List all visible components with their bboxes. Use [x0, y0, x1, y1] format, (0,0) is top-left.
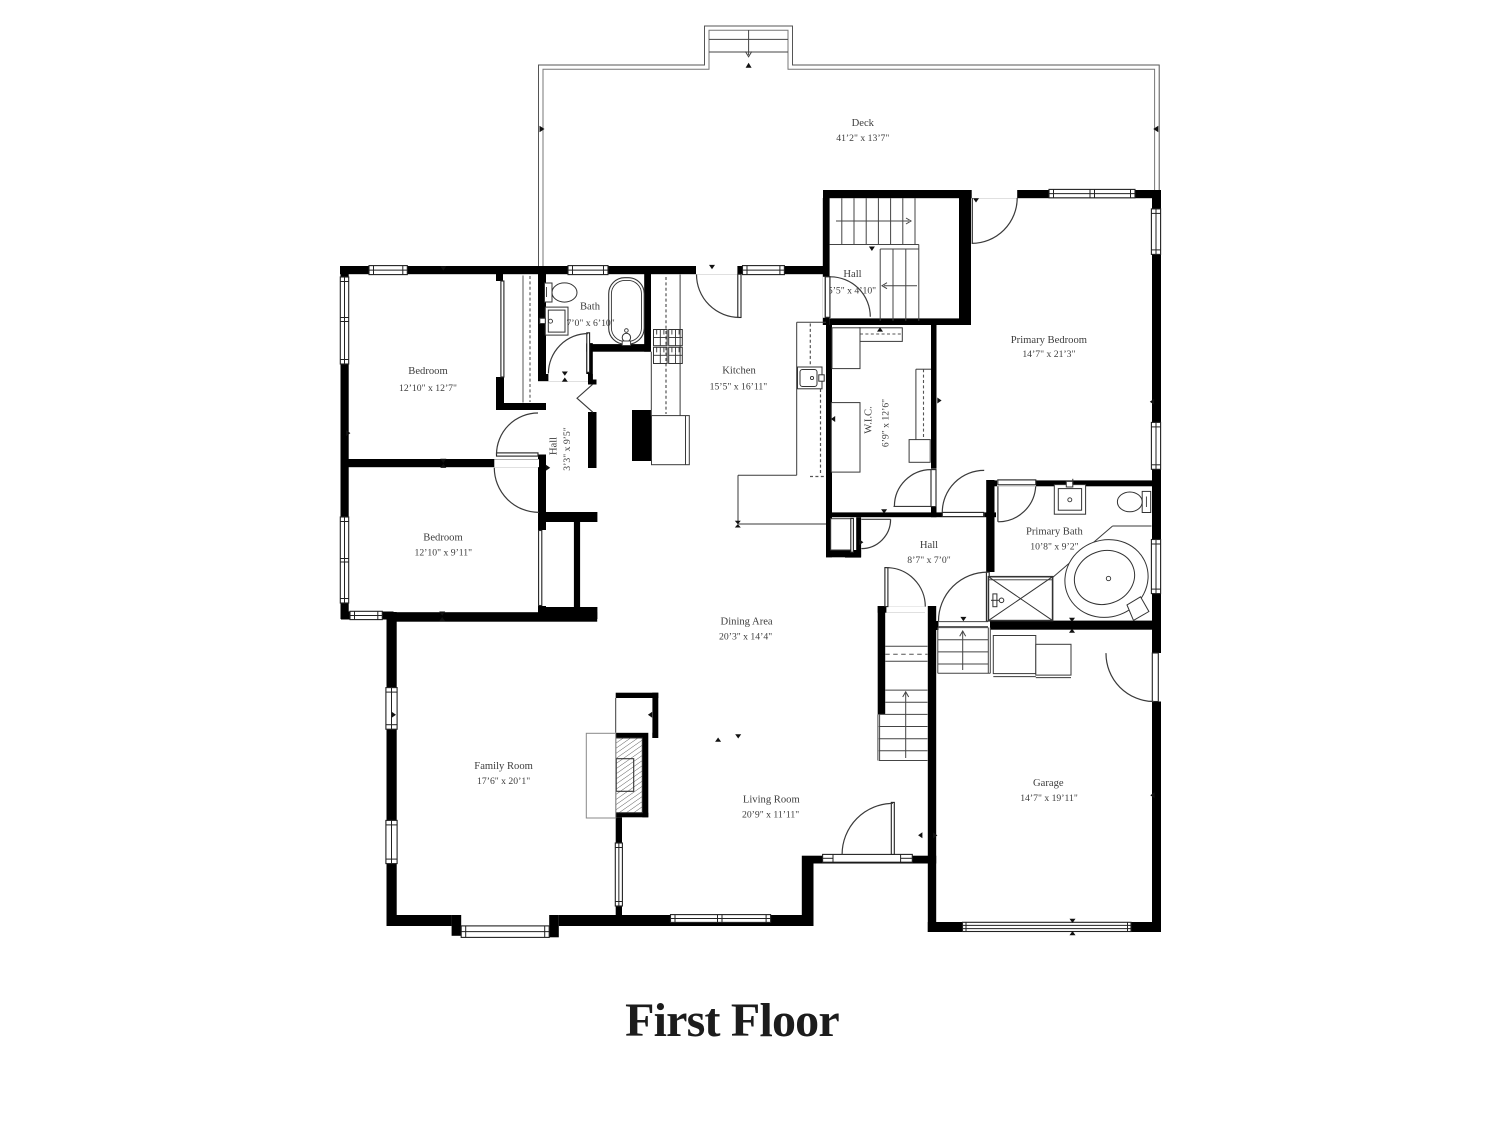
svg-text:Living Room: Living Room	[743, 795, 801, 806]
svg-text:Bedroom: Bedroom	[408, 366, 448, 377]
svg-text:Dining Area: Dining Area	[721, 616, 773, 627]
svg-text:12’10" x 9’11": 12’10" x 9’11"	[414, 547, 472, 558]
svg-text:14’7" x 19’11": 14’7" x 19’11"	[1020, 793, 1078, 804]
svg-text:Garage: Garage	[1033, 778, 1064, 789]
svg-text:41’2" x 13’7": 41’2" x 13’7"	[836, 133, 889, 144]
svg-text:Hall: Hall	[549, 437, 560, 455]
svg-text:W.I.C.: W.I.C.	[864, 406, 875, 434]
svg-text:14’7" x 21’3": 14’7" x 21’3"	[1022, 349, 1075, 360]
svg-text:Primary Bath: Primary Bath	[1026, 527, 1083, 538]
svg-text:Family Room: Family Room	[474, 761, 533, 772]
svg-text:7’0" x 6’10": 7’0" x 6’10"	[566, 318, 614, 329]
svg-text:6’9" x 12’6": 6’9" x 12’6"	[881, 399, 892, 447]
svg-text:20’9" x 11’11": 20’9" x 11’11"	[742, 810, 799, 821]
svg-text:Primary Bedroom: Primary Bedroom	[1011, 335, 1088, 346]
svg-text:Hall: Hall	[920, 540, 938, 551]
svg-text:Bath: Bath	[580, 302, 601, 313]
svg-text:Kitchen: Kitchen	[722, 366, 756, 377]
svg-text:First Floor: First Floor	[625, 994, 839, 1047]
svg-text:8’7" x 7’0": 8’7" x 7’0"	[907, 555, 950, 566]
svg-text:10’8" x 9’2": 10’8" x 9’2"	[1030, 542, 1078, 553]
svg-text:Bedroom: Bedroom	[423, 533, 463, 544]
svg-text:3’3" x 9’5": 3’3" x 9’5"	[562, 427, 573, 470]
svg-text:17’6" x 20’1": 17’6" x 20’1"	[477, 776, 530, 787]
svg-text:5’5" x 4’10": 5’5" x 4’10"	[828, 286, 876, 297]
svg-text:Deck: Deck	[852, 118, 875, 129]
svg-text:20’3" x 14’4": 20’3" x 14’4"	[719, 632, 772, 643]
svg-text:12’10" x 12’7": 12’10" x 12’7"	[399, 383, 457, 394]
svg-text:15’5" x 16’11": 15’5" x 16’11"	[710, 382, 768, 393]
svg-text:Hall: Hall	[843, 269, 861, 280]
